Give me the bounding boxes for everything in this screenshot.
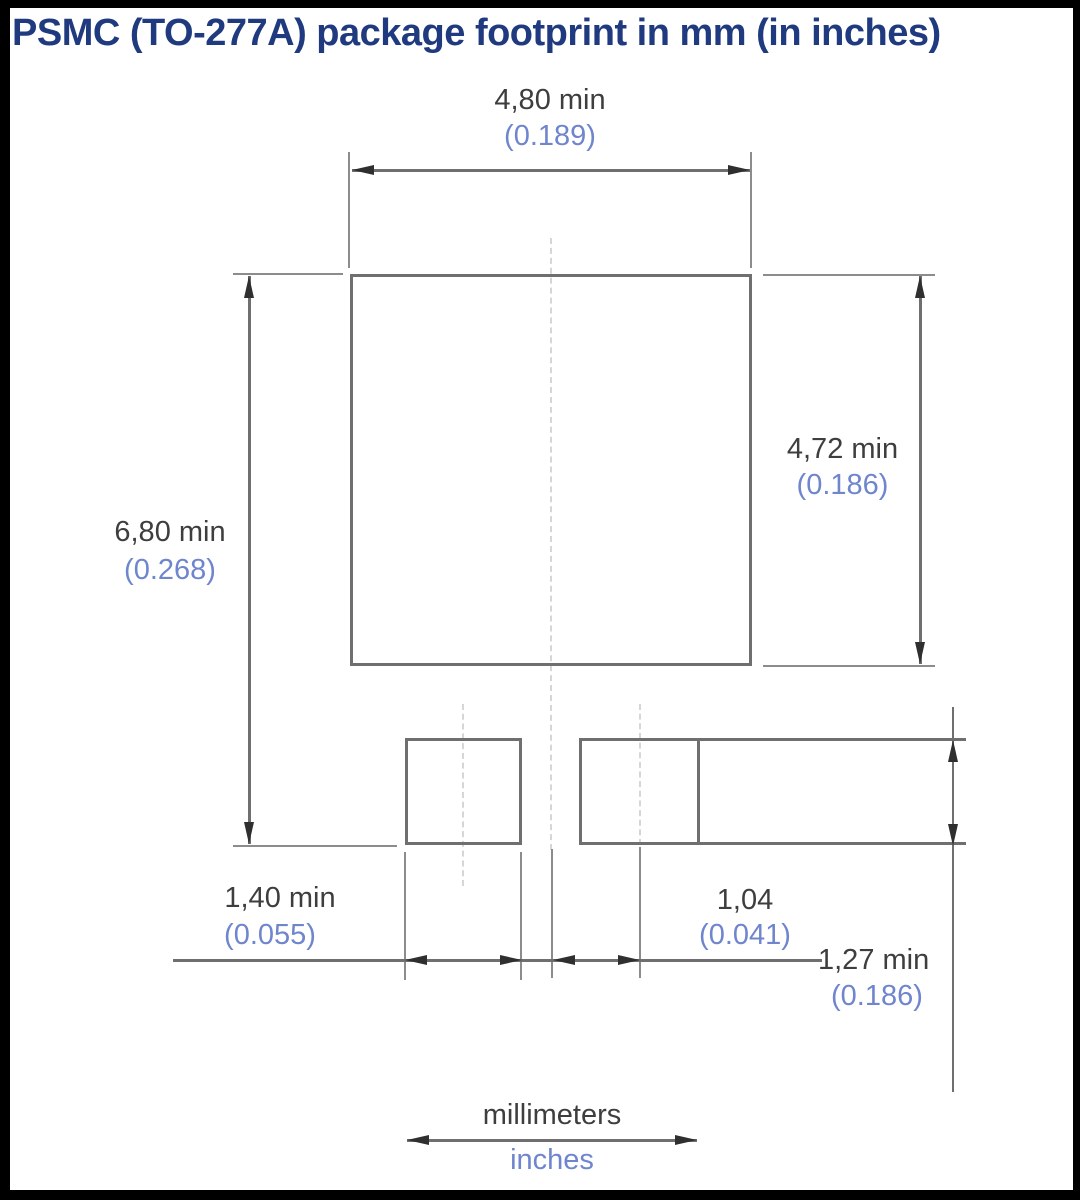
right-pad-left-edge (579, 738, 582, 845)
frame-bottom (0, 1190, 1080, 1200)
extension-line (348, 152, 350, 268)
left-pad-outline (405, 738, 522, 845)
legend-inches: inches (432, 1144, 672, 1177)
label-lower-pad-height-mm: 1,27 min (818, 944, 929, 977)
arrowhead-right (618, 955, 640, 965)
legend-arrow-line (407, 1139, 697, 1142)
label-main-pad-height-mm: 4,72 min (765, 433, 920, 466)
page-title: PSMC (TO-277A) package footprint in mm (… (12, 12, 1070, 55)
label-top-width-mm: 4,80 min (430, 84, 670, 117)
dimension-line-overall-height (248, 276, 251, 844)
dimension-line-lower-pad-height (952, 707, 954, 1092)
right-pad-centerline (639, 704, 641, 845)
arrowhead-right (675, 1135, 697, 1145)
right-pad-top-edge (579, 738, 966, 741)
label-pad-gap-mm: 1,04 (670, 884, 820, 917)
dimension-line-top-width (352, 169, 750, 172)
label-main-pad-height-in: (0.186) (765, 469, 920, 502)
arrowhead-right (500, 955, 522, 965)
extension-line (233, 845, 397, 847)
right-pad-bottom-edge (579, 842, 966, 845)
arrowhead-right (728, 165, 750, 175)
arrowhead-down (244, 822, 254, 844)
arrowhead-down (915, 642, 925, 664)
dimension-line-bottom (173, 959, 822, 962)
arrowhead-left (407, 1135, 429, 1145)
arrowhead-left (553, 955, 575, 965)
right-pad-divider (697, 738, 700, 845)
label-top-width-in: (0.189) (430, 120, 670, 153)
arrowhead-left (352, 165, 374, 175)
label-lower-pad-width-mm: 1,40 min (205, 882, 355, 915)
arrowhead-up (915, 276, 925, 298)
extension-line (233, 273, 343, 275)
frame-top (0, 0, 1080, 8)
label-pad-gap-in: (0.041) (670, 919, 820, 952)
frame-right (1073, 0, 1080, 1200)
label-lower-pad-height-in: (0.186) (831, 980, 923, 1013)
drawing-canvas: PSMC (TO-277A) package footprint in mm (… (0, 0, 1080, 1200)
arrowhead-down (948, 824, 958, 846)
label-overall-height-mm: 6,80 min (95, 516, 245, 549)
arrowhead-left (405, 955, 427, 965)
frame-left (0, 0, 10, 1200)
extension-line (750, 152, 752, 268)
arrowhead-up (948, 740, 958, 762)
extension-line (763, 274, 935, 276)
package-outline (350, 274, 752, 666)
legend-millimeters: millimeters (432, 1099, 672, 1132)
arrowhead-up (244, 276, 254, 298)
label-overall-height-in: (0.268) (95, 554, 245, 587)
extension-line (763, 665, 935, 667)
label-lower-pad-width-in: (0.055) (195, 919, 345, 952)
